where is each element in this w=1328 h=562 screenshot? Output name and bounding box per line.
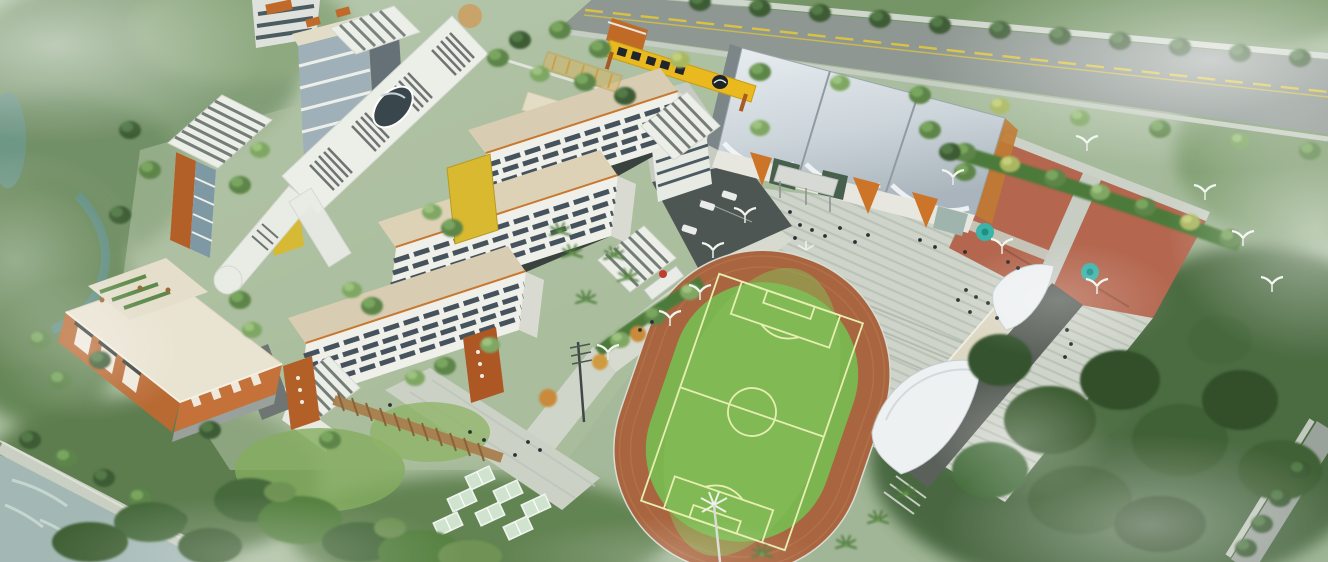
red-kiosk: [659, 270, 667, 278]
gate-logo: [712, 75, 728, 89]
rendering-canvas: [0, 0, 1328, 562]
campus-aerial-rendering: [0, 0, 1328, 562]
